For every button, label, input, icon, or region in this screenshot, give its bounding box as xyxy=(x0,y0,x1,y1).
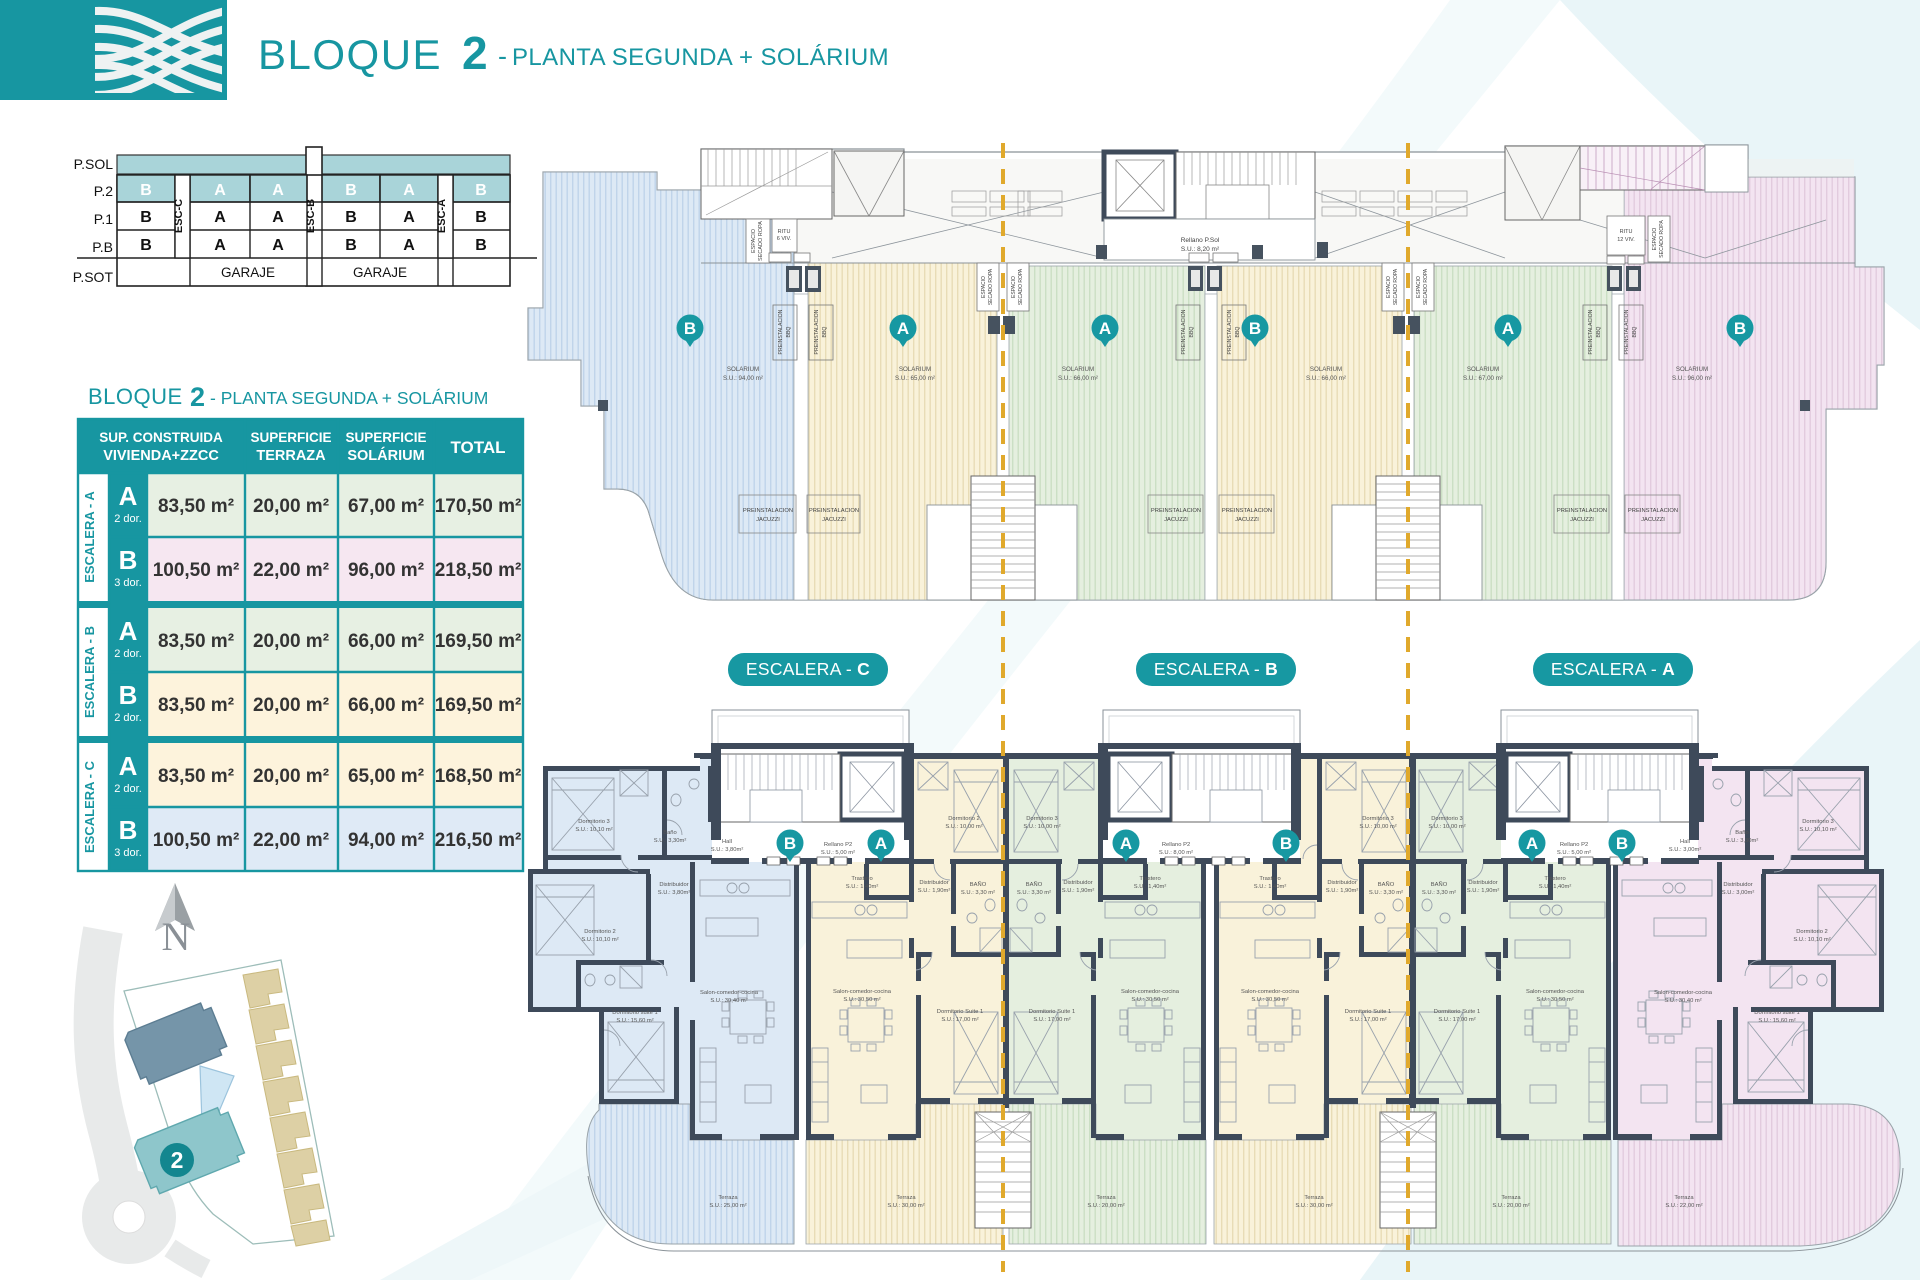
svg-text:ESPACIO: ESPACIO xyxy=(1416,276,1422,298)
svg-text:S.U.: 3,30 m²: S.U.: 3,30 m² xyxy=(1422,890,1456,896)
svg-text:20,00 m²: 20,00 m² xyxy=(253,631,329,652)
svg-text:66,00 m²: 66,00 m² xyxy=(348,631,424,652)
svg-text:S.U.: 3,80m²: S.U.: 3,80m² xyxy=(711,847,744,853)
svg-text:S.U.: 10,10 m²: S.U.: 10,10 m² xyxy=(1799,827,1836,833)
svg-text:B: B xyxy=(1280,834,1292,853)
svg-text:B: B xyxy=(1734,319,1746,338)
svg-text:S.U.: 10,10 m²: S.U.: 10,10 m² xyxy=(575,827,612,833)
svg-text:B: B xyxy=(119,815,138,845)
svg-text:SOLARIUM: SOLARIUM xyxy=(1310,366,1342,373)
svg-text:A: A xyxy=(403,182,415,199)
svg-text:Distribuidor: Distribuidor xyxy=(659,882,688,888)
svg-text:S.U.: 10,00 m²: S.U.: 10,00 m² xyxy=(1023,824,1060,830)
svg-text:S.U.: 5,00 m²: S.U.: 5,00 m² xyxy=(821,850,855,856)
svg-text:PREINSTALACION: PREINSTALACION xyxy=(1628,508,1678,514)
svg-text:A: A xyxy=(214,209,226,226)
svg-text:PREINSTALACION: PREINSTALACION xyxy=(1151,508,1201,514)
svg-text:JACUZZI: JACUZZI xyxy=(1164,517,1188,523)
svg-text:A: A xyxy=(1120,834,1132,853)
svg-text:BLOQUE: BLOQUE xyxy=(258,31,442,78)
svg-text:94,00 m²: 94,00 m² xyxy=(348,830,424,851)
svg-text:2 dor.: 2 dor. xyxy=(114,648,142,660)
svg-text:A: A xyxy=(1526,834,1538,853)
svg-text:PREINSTALACION: PREINSTALACION xyxy=(1588,309,1594,354)
svg-text:Terraza: Terraza xyxy=(1501,1195,1521,1201)
svg-text:Dormitorio suite 1: Dormitorio suite 1 xyxy=(1754,1010,1799,1016)
svg-text:B: B xyxy=(140,237,152,254)
svg-text:96,00 m²: 96,00 m² xyxy=(348,560,424,581)
svg-text:PREINSTALACION: PREINSTALACION xyxy=(1222,508,1272,514)
svg-text:SOLÁRIUM: SOLÁRIUM xyxy=(347,447,424,464)
svg-text:B: B xyxy=(345,209,357,226)
svg-text:S.U.: 25,00 m²: S.U.: 25,00 m² xyxy=(709,1203,746,1209)
svg-text:S.U.: 3,30m²: S.U.: 3,30m² xyxy=(654,838,687,844)
svg-text:170,50 m²: 170,50 m² xyxy=(435,496,522,517)
svg-text:ESC-A: ESC-A xyxy=(436,199,448,233)
svg-text:B: B xyxy=(1249,319,1261,338)
svg-text:A: A xyxy=(214,237,226,254)
svg-text:S.U.: 17,00 m²: S.U.: 17,00 m² xyxy=(941,1017,978,1023)
svg-text:3 dor.: 3 dor. xyxy=(114,847,142,859)
svg-text:6 VIV.: 6 VIV. xyxy=(777,236,792,242)
svg-text:S.U.: 3,30m²: S.U.: 3,30m² xyxy=(1726,838,1759,844)
svg-text:S.U.: 1,90m²: S.U.: 1,90m² xyxy=(1326,888,1359,894)
svg-text:A: A xyxy=(119,616,138,646)
svg-text:S.U.: 96,00 m²: S.U.: 96,00 m² xyxy=(1672,375,1712,382)
svg-text:S.U.: 15,60 m²: S.U.: 15,60 m² xyxy=(1758,1018,1795,1024)
svg-text:2 dor.: 2 dor. xyxy=(114,513,142,525)
svg-text:B: B xyxy=(345,237,357,254)
svg-text:SECADO ROPA: SECADO ROPA xyxy=(988,268,994,305)
svg-text:Terraza: Terraza xyxy=(1096,1195,1116,1201)
svg-text:SOLARIUM: SOLARIUM xyxy=(1676,366,1708,373)
svg-text:S.U.: 3,80m²: S.U.: 3,80m² xyxy=(658,890,691,896)
svg-text:PREINSTALACION: PREINSTALACION xyxy=(1557,508,1607,514)
svg-text:Dormitorio Suite 1: Dormitorio Suite 1 xyxy=(937,1009,983,1015)
svg-text:ESPACIO: ESPACIO xyxy=(1011,276,1017,298)
svg-text:Rellano P2: Rellano P2 xyxy=(1162,842,1190,848)
svg-text:SOLARIUM: SOLARIUM xyxy=(727,366,759,373)
svg-text:ESCALERA - C: ESCALERA - C xyxy=(746,659,870,679)
svg-text:Terraza: Terraza xyxy=(718,1195,738,1201)
svg-text:Trastero: Trastero xyxy=(851,876,872,882)
svg-text:BLOQUE: BLOQUE xyxy=(88,384,183,409)
svg-text:Dormitorio 3: Dormitorio 3 xyxy=(1802,819,1834,825)
svg-text:BBQ: BBQ xyxy=(1235,327,1241,338)
svg-text:B: B xyxy=(475,182,487,199)
svg-text:Dormitorio 3: Dormitorio 3 xyxy=(1026,816,1058,822)
svg-text:B: B xyxy=(1616,834,1628,853)
svg-text:B: B xyxy=(119,545,138,575)
svg-text:JACUZZI: JACUZZI xyxy=(1235,517,1259,523)
svg-text:Salon-comedor-cocina: Salon-comedor-cocina xyxy=(1241,989,1300,995)
svg-text:S.U.: 10,00 m²: S.U.: 10,00 m² xyxy=(1428,824,1465,830)
svg-text:20,00 m²: 20,00 m² xyxy=(253,766,329,787)
svg-text:100,50 m²: 100,50 m² xyxy=(153,560,240,581)
svg-text:BBQ: BBQ xyxy=(1632,327,1638,338)
svg-text:S.U.: 3,00m²: S.U.: 3,00m² xyxy=(1669,847,1702,853)
svg-text:SECADO ROPA: SECADO ROPA xyxy=(1423,268,1429,305)
svg-text:S.U.: 22,00 m²: S.U.: 22,00 m² xyxy=(1665,1203,1702,1209)
svg-text:PLANTA SEGUNDA + SOLÁRIUM: PLANTA SEGUNDA + SOLÁRIUM xyxy=(512,44,889,71)
svg-text:S.U.: 30,40 m²: S.U.: 30,40 m² xyxy=(710,998,747,1004)
svg-text:S.U.: 10,00 m²: S.U.: 10,00 m² xyxy=(1359,824,1396,830)
svg-text:SECADO ROPA: SECADO ROPA xyxy=(1393,268,1399,305)
svg-text:2: 2 xyxy=(190,382,205,412)
svg-text:GARAJE: GARAJE xyxy=(353,265,407,280)
svg-text:S.U.: 5,00 m²: S.U.: 5,00 m² xyxy=(1557,850,1591,856)
svg-text:ESPACIO: ESPACIO xyxy=(981,276,987,298)
svg-text:S.U.: 30,00 m²: S.U.: 30,00 m² xyxy=(887,1203,924,1209)
svg-text:2 dor.: 2 dor. xyxy=(114,783,142,795)
svg-text:A: A xyxy=(119,481,138,511)
svg-text:22,00 m²: 22,00 m² xyxy=(253,560,329,581)
svg-text:Trastero: Trastero xyxy=(1139,876,1160,882)
svg-text:PREINSTALACION: PREINSTALACION xyxy=(814,309,820,354)
svg-text:S.U.: 17,00 m²: S.U.: 17,00 m² xyxy=(1033,1017,1070,1023)
svg-text:SECADO ROPA: SECADO ROPA xyxy=(758,221,764,261)
svg-text:Distribuidor: Distribuidor xyxy=(1063,880,1092,886)
svg-text:S.U.: 66,00 m²: S.U.: 66,00 m² xyxy=(1058,375,1098,382)
svg-text:S.U.: 30,50 m²: S.U.: 30,50 m² xyxy=(1536,997,1573,1003)
svg-text:JACUZZI: JACUZZI xyxy=(1641,517,1665,523)
svg-text:65,00 m²: 65,00 m² xyxy=(348,766,424,787)
svg-text:P.SOL: P.SOL xyxy=(74,156,114,172)
svg-text:BBQ: BBQ xyxy=(1189,327,1195,338)
svg-text:BAÑO: BAÑO xyxy=(970,881,987,888)
svg-text:ESPACIO: ESPACIO xyxy=(751,228,757,253)
svg-text:Trastero: Trastero xyxy=(1259,876,1280,882)
svg-text:Hall: Hall xyxy=(1680,839,1690,845)
svg-text:S.U.: 3,30 m²: S.U.: 3,30 m² xyxy=(961,890,995,896)
svg-text:S.U.: 1,40m²: S.U.: 1,40m² xyxy=(1254,884,1287,890)
svg-text:S.U.: 67,00 m²: S.U.: 67,00 m² xyxy=(1463,375,1503,382)
svg-text:A: A xyxy=(1502,319,1514,338)
svg-text:20,00 m²: 20,00 m² xyxy=(253,496,329,517)
svg-text:PREINSTALACION: PREINSTALACION xyxy=(1624,309,1630,354)
svg-text:- PLANTA SEGUNDA + SOLÁRIUM: - PLANTA SEGUNDA + SOLÁRIUM xyxy=(210,388,488,408)
svg-text:A: A xyxy=(119,751,138,781)
svg-text:JACUZZI: JACUZZI xyxy=(1570,517,1594,523)
svg-text:2: 2 xyxy=(462,27,488,79)
svg-text:A: A xyxy=(403,237,415,254)
svg-text:S.U.: 15,60 m²: S.U.: 15,60 m² xyxy=(616,1018,653,1024)
svg-text:20,00 m²: 20,00 m² xyxy=(253,695,329,716)
svg-text:RITU: RITU xyxy=(1620,229,1633,235)
svg-text:S.U.: 30,00 m²: S.U.: 30,00 m² xyxy=(1295,1203,1332,1209)
svg-text:100,50 m²: 100,50 m² xyxy=(153,830,240,851)
svg-text:SOLARIUM: SOLARIUM xyxy=(1062,366,1094,373)
svg-text:ESPACIO: ESPACIO xyxy=(1652,228,1658,251)
svg-text:Distribuidor: Distribuidor xyxy=(1723,882,1752,888)
svg-text:JACUZZI: JACUZZI xyxy=(822,517,846,523)
svg-text:Trastero: Trastero xyxy=(1544,876,1565,882)
svg-text:A: A xyxy=(272,209,284,226)
svg-text:SUP. CONSTRUIDA: SUP. CONSTRUIDA xyxy=(99,430,223,445)
svg-text:Baño: Baño xyxy=(1735,830,1749,836)
svg-text:BAÑO: BAÑO xyxy=(1378,881,1395,888)
svg-text:B: B xyxy=(140,209,152,226)
svg-text:P.B: P.B xyxy=(92,239,113,255)
svg-text:Dormitorio 3: Dormitorio 3 xyxy=(1362,816,1394,822)
svg-text:Baño: Baño xyxy=(663,830,677,836)
svg-text:B: B xyxy=(784,834,796,853)
svg-text:12 VIV.: 12 VIV. xyxy=(1617,237,1635,243)
svg-text:169,50 m²: 169,50 m² xyxy=(435,695,522,716)
svg-text:BBQ: BBQ xyxy=(1596,327,1602,338)
svg-text:PREINSTALACION: PREINSTALACION xyxy=(1181,309,1187,354)
svg-text:Dormitorio Suite 1: Dormitorio Suite 1 xyxy=(1029,1009,1075,1015)
svg-text:Salon-comedor-cocina: Salon-comedor-cocina xyxy=(1654,990,1713,996)
svg-text:S.U.: 3,30 m²: S.U.: 3,30 m² xyxy=(1017,890,1051,896)
svg-text:B: B xyxy=(475,209,487,226)
svg-text:67,00 m²: 67,00 m² xyxy=(348,496,424,517)
svg-text:B: B xyxy=(345,182,357,199)
svg-text:ESCALERA - A: ESCALERA - A xyxy=(1551,659,1675,679)
svg-text:PREINSTALACION: PREINSTALACION xyxy=(778,309,784,354)
svg-text:83,50 m²: 83,50 m² xyxy=(158,496,234,517)
svg-text:S.U.: 10,10 m²: S.U.: 10,10 m² xyxy=(581,937,618,943)
svg-text:Salon-comedor-cocina: Salon-comedor-cocina xyxy=(700,990,759,996)
svg-text:ESC-C: ESC-C xyxy=(173,199,185,233)
svg-text:S.U.: 30,50 m²: S.U.: 30,50 m² xyxy=(1251,997,1288,1003)
svg-text:SECADO ROPA: SECADO ROPA xyxy=(1659,220,1665,258)
svg-text:SUPERFICIE: SUPERFICIE xyxy=(345,430,426,445)
svg-text:A: A xyxy=(1099,319,1111,338)
svg-text:B: B xyxy=(119,680,138,710)
svg-text:Dormitorio 2: Dormitorio 2 xyxy=(948,816,980,822)
svg-text:Salon-comedor-cocina: Salon-comedor-cocina xyxy=(1121,989,1180,995)
svg-text:Rellano P2: Rellano P2 xyxy=(1560,842,1588,848)
svg-text:216,50 m²: 216,50 m² xyxy=(435,830,522,851)
svg-text:83,50 m²: 83,50 m² xyxy=(158,631,234,652)
svg-text:Rellano P2: Rellano P2 xyxy=(824,842,852,848)
svg-text:BAÑO: BAÑO xyxy=(1026,881,1043,888)
svg-text:ESC-B: ESC-B xyxy=(305,199,317,233)
svg-text:BBQ: BBQ xyxy=(786,327,792,338)
svg-text:Distribuidor: Distribuidor xyxy=(919,880,948,886)
svg-text:S.U.: 10,00 m²: S.U.: 10,00 m² xyxy=(945,824,982,830)
svg-text:VIVIENDA+ZZCC: VIVIENDA+ZZCC xyxy=(103,448,219,464)
svg-text:S.U.: 17,00 m²: S.U.: 17,00 m² xyxy=(1438,1017,1475,1023)
svg-text:P.2: P.2 xyxy=(94,183,113,199)
svg-text:PREINSTALACION: PREINSTALACION xyxy=(1227,309,1233,354)
svg-text:S.U.: 30,50 m²: S.U.: 30,50 m² xyxy=(843,997,880,1003)
svg-text:BBQ: BBQ xyxy=(822,327,828,338)
svg-text:Hall: Hall xyxy=(722,839,732,845)
svg-text:B: B xyxy=(684,319,696,338)
svg-text:22,00 m²: 22,00 m² xyxy=(253,830,329,851)
svg-text:-: - xyxy=(498,41,507,71)
svg-text:ESCALERA - B: ESCALERA - B xyxy=(82,626,97,718)
svg-text:RITU: RITU xyxy=(778,229,791,235)
svg-text:S.U.: 20,00 m²: S.U.: 20,00 m² xyxy=(1087,1203,1124,1209)
svg-text:P.SOT: P.SOT xyxy=(73,269,114,285)
svg-text:S.U.: 65,00 m²: S.U.: 65,00 m² xyxy=(895,375,935,382)
svg-text:83,50 m²: 83,50 m² xyxy=(158,766,234,787)
svg-text:Dormitorio 3: Dormitorio 3 xyxy=(1431,816,1463,822)
svg-text:S.U.: 10,10 m²: S.U.: 10,10 m² xyxy=(1793,937,1830,943)
svg-text:S.U.: 30,40 m²: S.U.: 30,40 m² xyxy=(1664,998,1701,1004)
svg-text:Salon-comedor-cocina: Salon-comedor-cocina xyxy=(833,989,892,995)
svg-text:S.U.: 1,40m²: S.U.: 1,40m² xyxy=(1134,884,1167,890)
svg-text:PREINSTALACION: PREINSTALACION xyxy=(809,508,859,514)
svg-text:TERRAZA: TERRAZA xyxy=(256,448,326,464)
svg-text:Terraza: Terraza xyxy=(1304,1195,1324,1201)
svg-text:168,50 m²: 168,50 m² xyxy=(435,766,522,787)
svg-text:Terraza: Terraza xyxy=(1674,1195,1694,1201)
svg-text:Terraza: Terraza xyxy=(896,1195,916,1201)
svg-text:Dormitorio Suite 1: Dormitorio Suite 1 xyxy=(1345,1009,1391,1015)
svg-text:S.U.: 8,00 m²: S.U.: 8,00 m² xyxy=(1159,850,1193,856)
svg-text:S.U.: 1,90m²: S.U.: 1,90m² xyxy=(1062,888,1095,894)
svg-text:218,50 m²: 218,50 m² xyxy=(435,560,522,581)
svg-text:Distribuidor: Distribuidor xyxy=(1468,880,1497,886)
svg-text:S.U.: 1,40m²: S.U.: 1,40m² xyxy=(846,884,879,890)
svg-text:A: A xyxy=(897,319,909,338)
svg-text:A: A xyxy=(875,834,887,853)
svg-text:P.1: P.1 xyxy=(94,211,113,227)
svg-text:TOTAL: TOTAL xyxy=(450,438,505,457)
svg-text:A: A xyxy=(403,209,415,226)
svg-text:B: B xyxy=(140,182,152,199)
svg-text:S.U.: 1,90m²: S.U.: 1,90m² xyxy=(918,888,951,894)
svg-text:Dormitorio 2: Dormitorio 2 xyxy=(1796,929,1828,935)
svg-text:JACUZZI: JACUZZI xyxy=(756,517,780,523)
svg-text:B: B xyxy=(475,237,487,254)
svg-text:66,00 m²: 66,00 m² xyxy=(348,695,424,716)
svg-text:S.U.: 8,20 m²: S.U.: 8,20 m² xyxy=(1181,246,1220,253)
svg-text:ESPACIO: ESPACIO xyxy=(1386,276,1392,298)
svg-text:Distribuidor: Distribuidor xyxy=(1327,880,1356,886)
svg-text:ESCALERA - C: ESCALERA - C xyxy=(82,760,97,853)
svg-text:Rellano P.Sol: Rellano P.Sol xyxy=(1181,237,1220,244)
svg-text:169,50 m²: 169,50 m² xyxy=(435,631,522,652)
svg-text:S.U.: 1,40m²: S.U.: 1,40m² xyxy=(1539,884,1572,890)
svg-text:Dormitorio 3: Dormitorio 3 xyxy=(578,819,610,825)
svg-text:S.U.: 30,50 m²: S.U.: 30,50 m² xyxy=(1131,997,1168,1003)
svg-text:SOLARIUM: SOLARIUM xyxy=(899,366,931,373)
svg-text:PREINSTALACION: PREINSTALACION xyxy=(743,508,793,514)
svg-text:S.U.: 17,00 m²: S.U.: 17,00 m² xyxy=(1349,1017,1386,1023)
svg-text:Salon-comedor-cocina: Salon-comedor-cocina xyxy=(1526,989,1585,995)
svg-text:Dormitorio 2: Dormitorio 2 xyxy=(584,929,616,935)
svg-text:S.U.: 20,00 m²: S.U.: 20,00 m² xyxy=(1492,1203,1529,1209)
svg-text:2: 2 xyxy=(171,1147,184,1173)
svg-text:83,50 m²: 83,50 m² xyxy=(158,695,234,716)
svg-text:S.U.: 3,00m²: S.U.: 3,00m² xyxy=(1722,890,1755,896)
svg-text:N: N xyxy=(162,914,191,959)
svg-text:3 dor.: 3 dor. xyxy=(114,577,142,589)
svg-text:S.U.: 1,90m²: S.U.: 1,90m² xyxy=(1467,888,1500,894)
svg-text:ESCALERA - B: ESCALERA - B xyxy=(1154,659,1278,679)
svg-text:SECADO ROPA: SECADO ROPA xyxy=(1018,268,1024,305)
svg-text:Dormitorio Suite 1: Dormitorio Suite 1 xyxy=(1434,1009,1480,1015)
svg-text:S.U.: 94,00 m²: S.U.: 94,00 m² xyxy=(723,375,763,382)
svg-text:ESCALERA - A: ESCALERA - A xyxy=(82,491,97,583)
svg-text:A: A xyxy=(272,182,284,199)
svg-text:GARAJE: GARAJE xyxy=(221,265,275,280)
svg-text:2 dor.: 2 dor. xyxy=(114,712,142,724)
svg-text:S.U.: 66,00 m²: S.U.: 66,00 m² xyxy=(1306,375,1346,382)
svg-text:SOLARIUM: SOLARIUM xyxy=(1467,366,1499,373)
svg-text:S.U.: 3,30 m²: S.U.: 3,30 m² xyxy=(1369,890,1403,896)
svg-text:Dormitorio suite 1: Dormitorio suite 1 xyxy=(612,1010,657,1016)
svg-text:BAÑO: BAÑO xyxy=(1431,881,1448,888)
svg-text:SUPERFICIE: SUPERFICIE xyxy=(250,430,331,445)
svg-text:A: A xyxy=(272,237,284,254)
svg-text:A: A xyxy=(214,182,226,199)
